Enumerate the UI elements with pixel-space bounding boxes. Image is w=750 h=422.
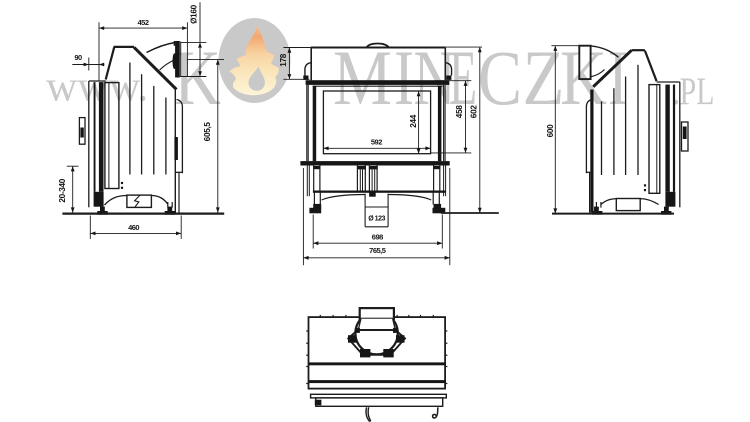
svg-text:90: 90 [74, 53, 82, 62]
svg-text:765,5: 765,5 [369, 246, 386, 255]
svg-text:20-340: 20-340 [58, 178, 67, 202]
svg-text:Z: Z [523, 34, 565, 121]
svg-text:PL: PL [680, 70, 715, 113]
svg-text:698: 698 [372, 233, 383, 242]
svg-text:600: 600 [546, 124, 555, 138]
svg-text:605,5: 605,5 [203, 122, 212, 142]
svg-text:592: 592 [371, 138, 382, 147]
svg-text:458: 458 [455, 105, 464, 119]
svg-text:www.: www. [46, 63, 148, 111]
svg-text:452: 452 [137, 18, 148, 27]
svg-text:244: 244 [409, 114, 418, 128]
svg-text:460: 460 [128, 223, 139, 232]
svg-text:C: C [478, 34, 522, 121]
svg-text:Ø160: Ø160 [189, 4, 198, 24]
svg-text:178: 178 [279, 53, 288, 67]
svg-text:Ø 123: Ø 123 [368, 216, 385, 223]
svg-text:602: 602 [470, 105, 479, 119]
